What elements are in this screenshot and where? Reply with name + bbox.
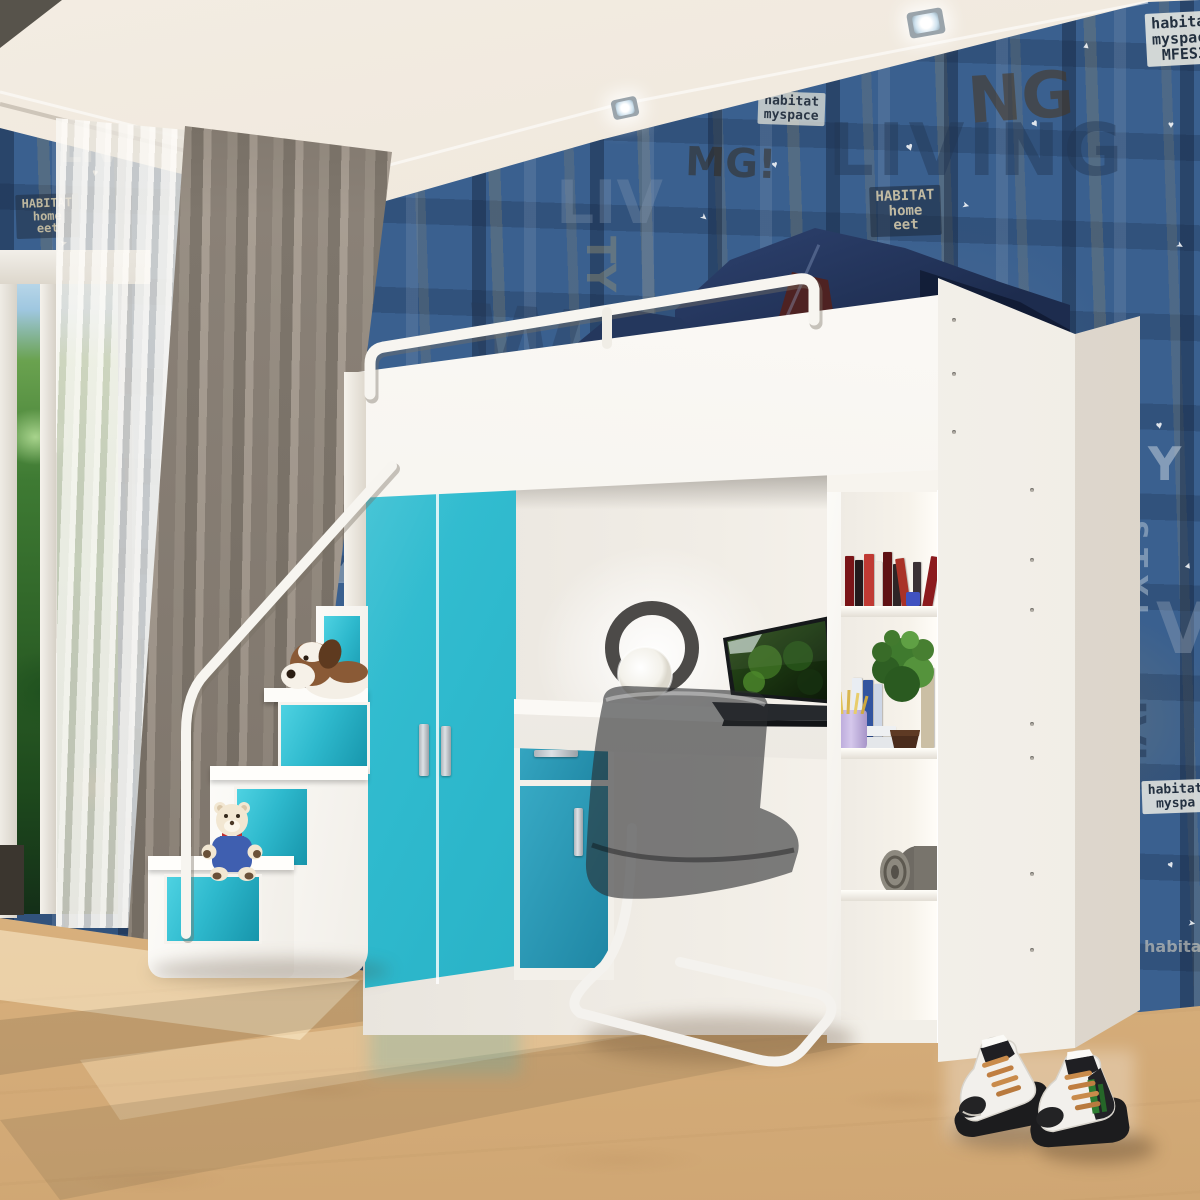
sneaker-right xyxy=(1029,1046,1133,1151)
room-photo: LIVINGLIVINGNGMG!NYLIWLIVTYS T YVLIVYspa… xyxy=(0,0,1200,1200)
stair-handrail xyxy=(186,466,392,934)
sneakers xyxy=(935,1015,1145,1185)
